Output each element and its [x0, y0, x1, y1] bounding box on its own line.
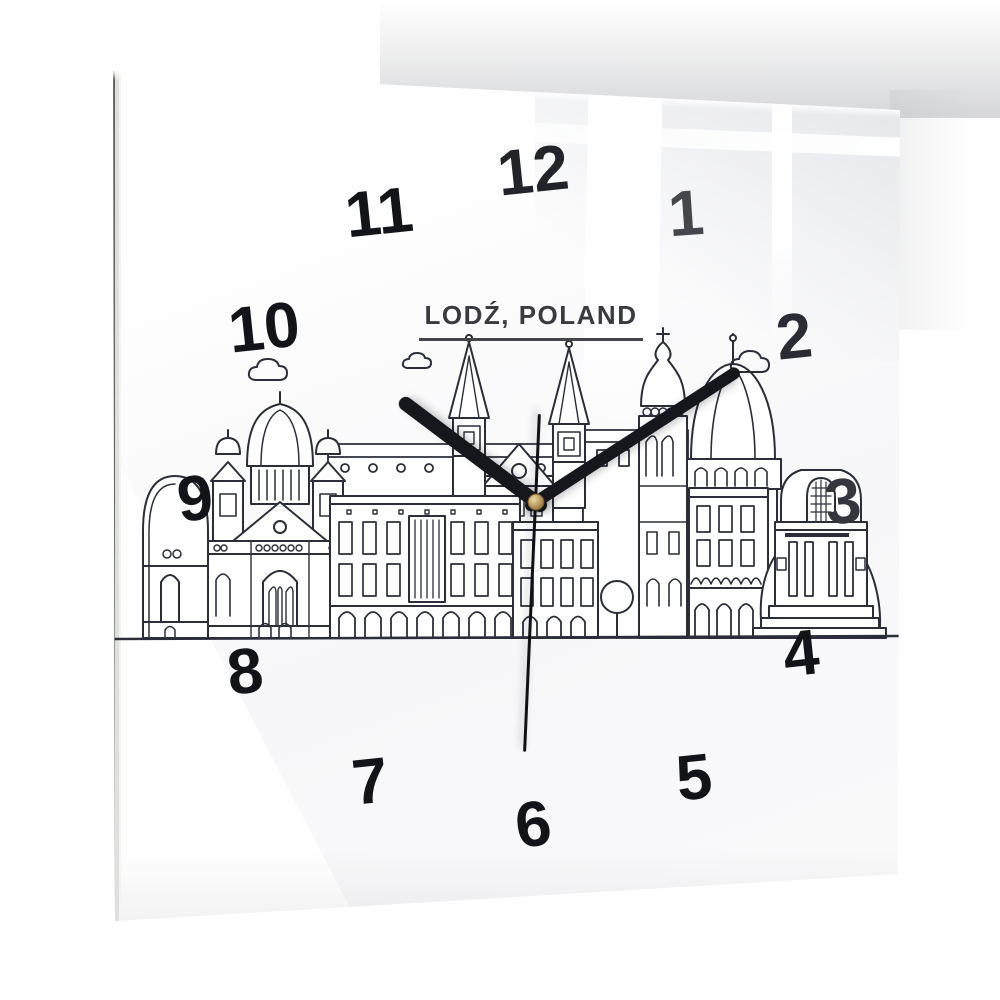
numeral-2: 2 — [773, 302, 815, 369]
center-pin — [528, 494, 545, 511]
numeral-10: 10 — [225, 291, 302, 362]
panel-bottom-shading — [113, 850, 900, 922]
numeral-7: 7 — [349, 747, 391, 814]
numeral-12: 12 — [494, 134, 571, 205]
wall-shadow-right — [890, 90, 1000, 330]
city-title: LODŹ, POLAND — [425, 300, 638, 330]
numeral-3: 3 — [822, 467, 864, 534]
numeral-4: 4 — [780, 619, 822, 686]
city-title-block: LODŹ, POLAND — [419, 300, 643, 341]
clock-glass-panel: LODŹ, POLAND 12 1 2 3 4 5 6 7 8 9 10 11 — [0, 0, 1000, 1000]
numeral-11: 11 — [342, 177, 416, 248]
numeral-5: 5 — [673, 743, 715, 810]
numeral-8: 8 — [224, 637, 266, 704]
numeral-6: 6 — [511, 790, 555, 858]
numeral-1: 1 — [666, 180, 706, 246]
numeral-9: 9 — [174, 464, 216, 531]
